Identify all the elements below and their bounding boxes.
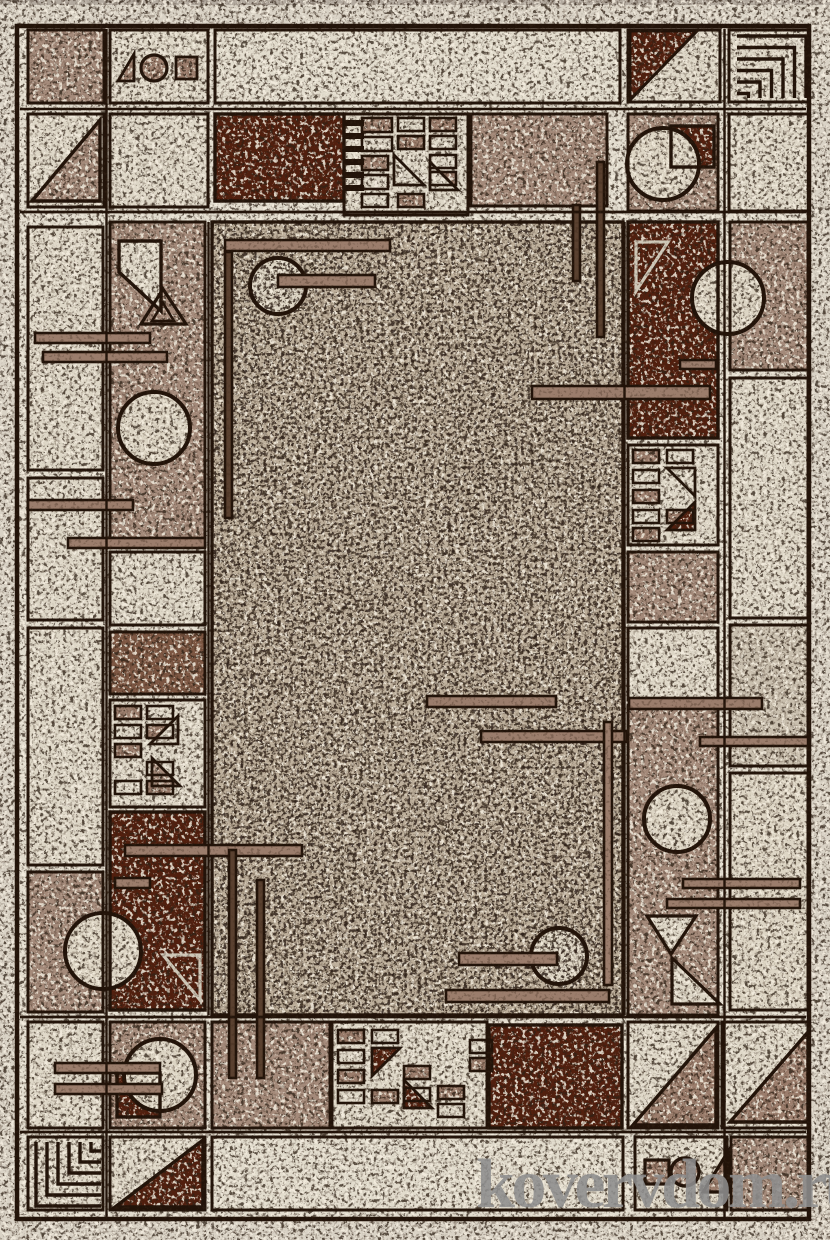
svg-text:kovervdom.ru: kovervdom.ru [476,1146,830,1223]
